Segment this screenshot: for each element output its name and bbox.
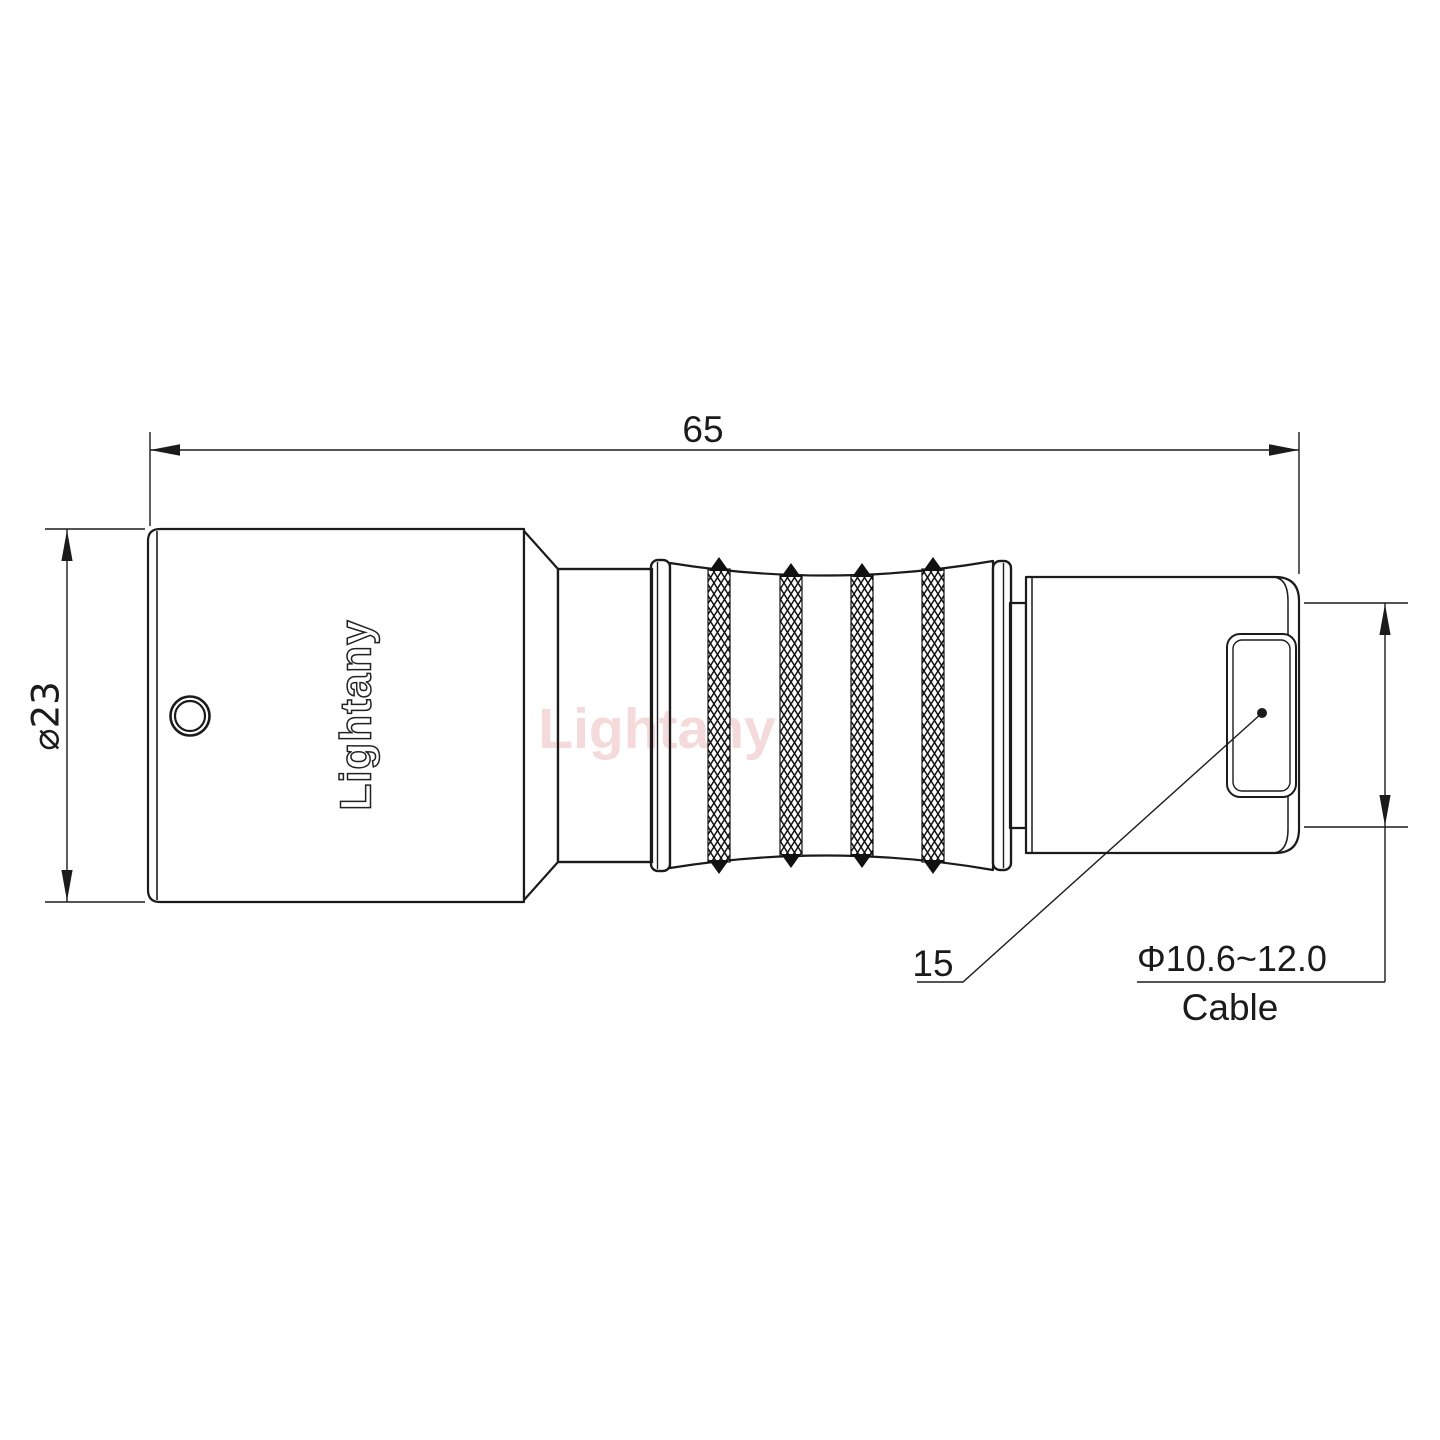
drawing-svg: Lightany Lightany (0, 0, 1440, 1440)
arrow-bottom (1379, 795, 1390, 826)
arrow-top (61, 530, 72, 561)
dim-label-cable-range: Φ10.6~12.0 (1137, 938, 1327, 979)
knurl-band (922, 557, 944, 874)
cable-entry-flange (1227, 634, 1296, 797)
dim-label-overall-length: 65 (682, 409, 723, 450)
dim-label-body-diameter: ⌀23 (25, 681, 68, 750)
engraved-logo-text: Lightany (332, 619, 381, 810)
grip-ring-right (993, 561, 1011, 870)
knurl-band (708, 557, 730, 874)
arrow-bottom (61, 870, 72, 901)
dim-label-rear-section: 15 (912, 943, 953, 984)
arrow-top (1379, 604, 1390, 635)
knurl-band (780, 563, 802, 868)
arrow-left (150, 444, 180, 456)
arrow-right (1269, 444, 1299, 456)
step-bushing (1010, 603, 1026, 828)
dim-label-cable-caption: Cable (1182, 987, 1279, 1028)
technical-drawing-connector: Lightany Lightany (0, 0, 1440, 1440)
knurl-band (851, 563, 873, 868)
